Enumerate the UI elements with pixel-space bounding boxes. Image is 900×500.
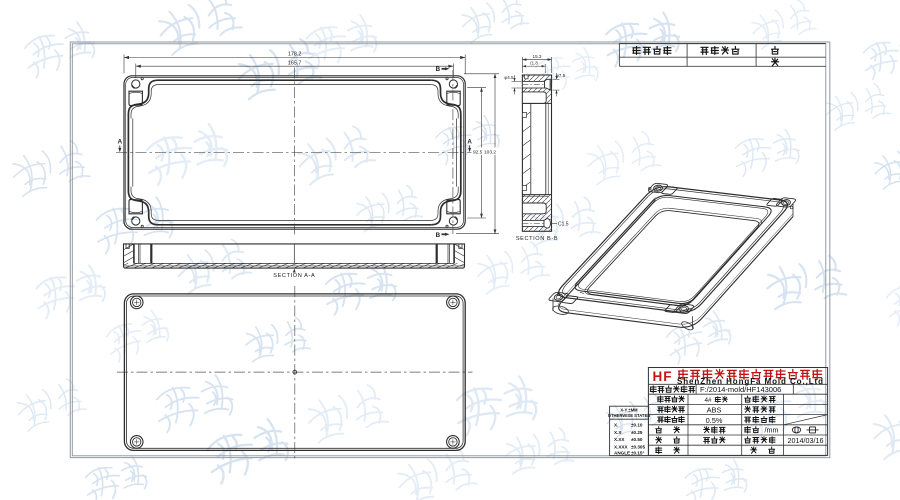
svg-text:SECTION A-A: SECTION A-A [273,273,315,279]
svg-text:0.5%: 0.5% [706,416,723,425]
svg-text:B: B [436,232,441,239]
svg-text:165.7: 165.7 [288,60,302,66]
svg-text:X.XX: X.XX [614,437,625,442]
svg-text:X.X: X.X [614,430,622,435]
svg-text:B: B [436,66,441,73]
svg-text:F:/2014-mold/HF143006: F:/2014-mold/HF143006 [700,385,781,394]
svg-text:(1.8: (1.8 [530,61,538,66]
svg-text:ABS: ABS [707,406,722,415]
svg-text:X.: X. [614,423,618,428]
svg-text:OTHERWISE STATED: OTHERWISE STATED [608,413,651,418]
svg-text:X.XXX: X.XXX [614,444,628,449]
svg-text:A: A [467,139,472,146]
svg-text:103.2: 103.2 [484,149,496,155]
svg-text:±0.25: ±0.25 [631,430,643,435]
svg-text:±0.50: ±0.50 [631,437,643,442]
svg-text:SECTION B-B: SECTION B-B [516,236,558,242]
svg-text:92.5: 92.5 [473,149,483,155]
svg-text:ANGLE: ANGLE [614,451,630,456]
svg-text:±0.15°: ±0.15° [631,451,644,456]
svg-text:/mm: /mm [765,426,779,435]
svg-text:15.3: 15.3 [533,54,542,59]
svg-text:±0.10: ±0.10 [631,423,643,428]
svg-text:X-Y ±MM: X-Y ±MM [620,408,638,413]
svg-text:φ7.5: φ7.5 [556,73,566,78]
svg-text:±0.305: ±0.305 [631,444,645,449]
svg-text:φ4.5: φ4.5 [504,75,514,80]
svg-text:C1.5: C1.5 [558,222,569,228]
svg-text:4#: 4# [704,397,712,404]
svg-text:2014/03/16: 2014/03/16 [788,436,824,445]
svg-text:178.2: 178.2 [288,52,302,58]
svg-text:A: A [118,139,123,146]
